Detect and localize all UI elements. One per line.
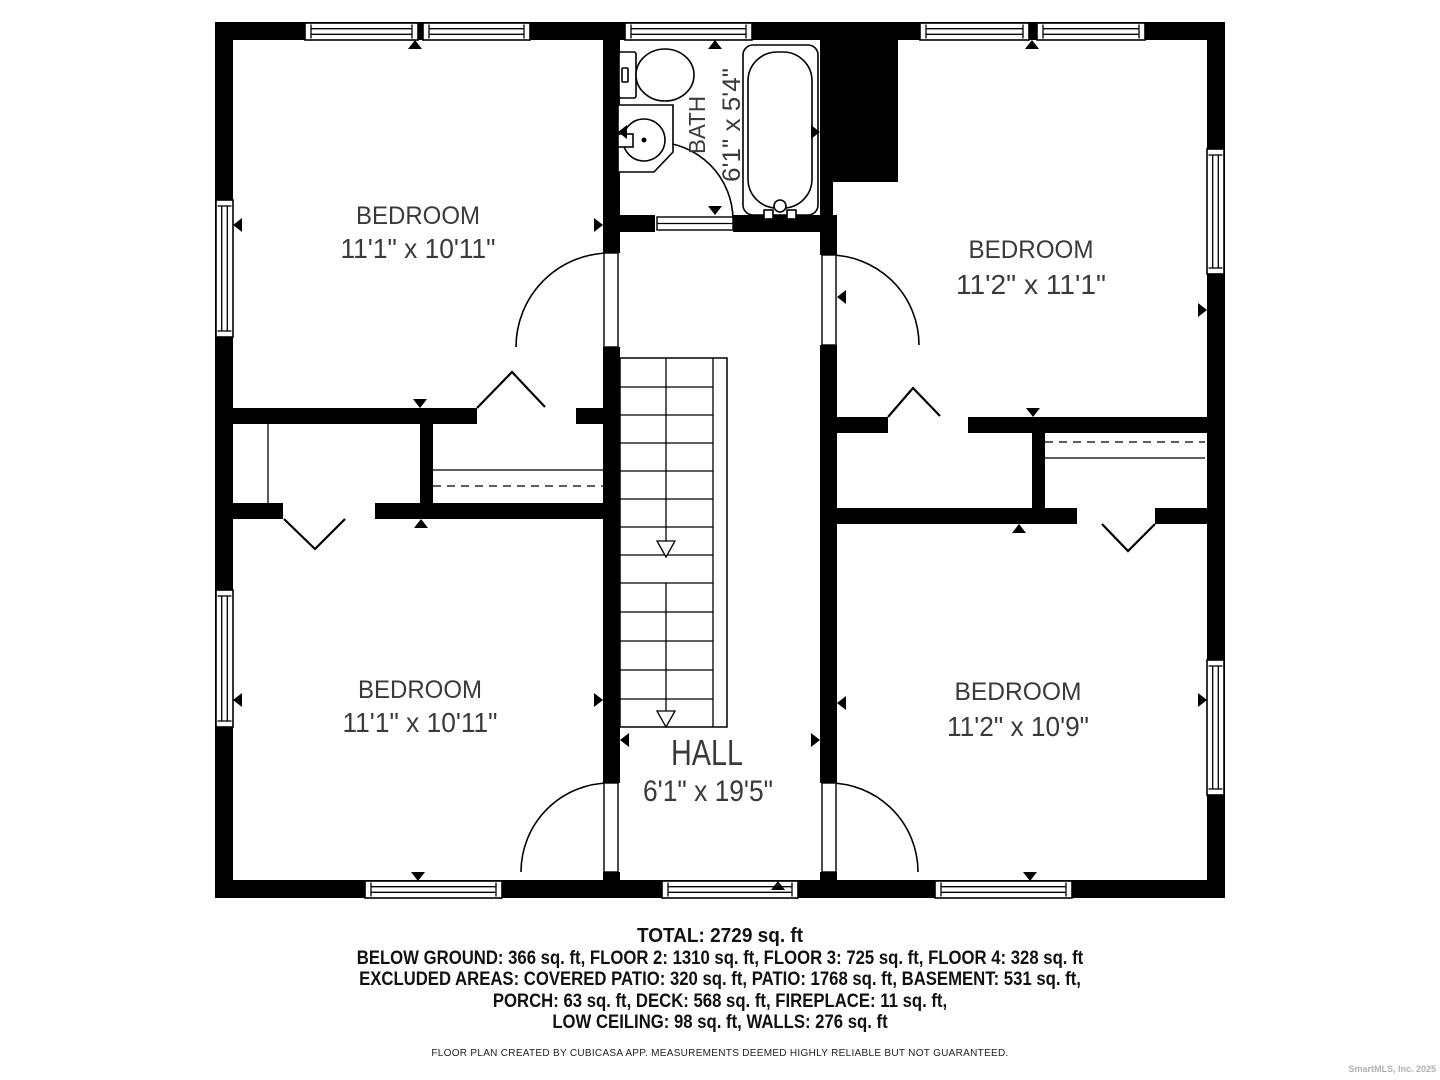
wall xyxy=(576,408,620,424)
window xyxy=(216,200,233,337)
window xyxy=(1037,23,1145,40)
room-dims-hall: 6'1" x 19'5" xyxy=(643,775,773,808)
wall xyxy=(215,503,283,519)
window-frame xyxy=(1037,23,1145,40)
bathtub-icon xyxy=(743,45,818,219)
bathtub-drain xyxy=(774,200,786,212)
wall xyxy=(1032,433,1045,508)
wall xyxy=(833,40,898,182)
window-frame xyxy=(216,200,233,337)
window xyxy=(365,881,502,898)
measure-arrow xyxy=(1023,872,1037,881)
window-frame xyxy=(305,23,418,40)
measure-arrow xyxy=(1026,408,1040,417)
window-frame xyxy=(365,881,502,898)
closet-lines-layer xyxy=(268,424,1205,503)
window-frame xyxy=(920,23,1029,40)
door-leaf xyxy=(822,255,836,345)
room-label-bath: BATH xyxy=(684,96,710,154)
door-swing-arc xyxy=(516,253,610,347)
room-label-bedroom-top-right: BEDROOM xyxy=(969,236,1094,264)
window xyxy=(1207,149,1224,274)
area-breakdown-line: PORCH: 63 sq. ft, DECK: 568 sq. ft, FIRE… xyxy=(86,991,1353,1013)
floor-plan-page: BEDROOM 11'1" x 10'11" BEDROOM 11'2" x 1… xyxy=(0,0,1440,1080)
room-dims-bath: 6'1" x 5'4" xyxy=(718,68,746,182)
staircase xyxy=(620,358,727,727)
measure-arrow xyxy=(594,693,603,707)
window xyxy=(920,23,1029,40)
window xyxy=(625,23,752,40)
wall xyxy=(733,215,837,232)
window-frame xyxy=(1207,149,1224,274)
measure-arrow xyxy=(408,40,422,49)
door-leaf xyxy=(822,783,836,872)
room-label-bedroom-bottom-right: BEDROOM xyxy=(955,678,1082,706)
room-label-bedroom-bottom-left: BEDROOM xyxy=(358,676,482,704)
door-swing-arc xyxy=(829,783,918,872)
room-dims-bedroom-top-right: 11'2" x 11'1" xyxy=(956,269,1106,300)
room-dims-bedroom-bottom-left: 11'1" x 10'11" xyxy=(343,707,498,738)
sink-drain xyxy=(642,138,647,143)
measure-arrow xyxy=(708,206,722,215)
area-breakdown-line: BELOW GROUND: 366 sq. ft, FLOOR 2: 1310 … xyxy=(86,948,1353,970)
footer-summary: TOTAL: 2729 sq. ft BELOW GROUND: 366 sq.… xyxy=(0,926,1440,1059)
window-frame xyxy=(625,23,752,40)
sink-icon xyxy=(618,105,673,172)
room-label-bedroom-top-left: BEDROOM xyxy=(356,202,480,230)
door-swing-arc xyxy=(521,783,610,872)
room-label-hall: HALL xyxy=(671,732,743,773)
bathtub-faucet xyxy=(787,210,796,219)
door-leaf xyxy=(604,783,618,872)
measure-arrow xyxy=(413,399,427,408)
wall xyxy=(603,215,655,232)
bifold-door xyxy=(284,519,345,549)
wall xyxy=(820,345,837,783)
area-breakdown-line: EXCLUDED AREAS: COVERED PATIO: 320 sq. f… xyxy=(86,969,1353,991)
wall xyxy=(1155,508,1207,524)
wall xyxy=(603,872,620,880)
total-area-text: TOTAL: 2729 sq. ft xyxy=(36,926,1404,948)
measure-arrow xyxy=(1012,524,1026,533)
measure-arrow xyxy=(837,696,846,710)
measure-arrow xyxy=(708,40,722,49)
window xyxy=(423,23,530,40)
toilet-icon xyxy=(619,49,694,101)
window-frame xyxy=(216,590,233,727)
window xyxy=(1207,660,1224,795)
measure-arrow xyxy=(811,733,820,747)
measure-arrow xyxy=(1025,40,1039,49)
window-frame xyxy=(935,881,1072,898)
floor-plan-canvas: BEDROOM 11'1" x 10'11" BEDROOM 11'2" x 1… xyxy=(0,0,1440,910)
wall xyxy=(420,424,433,503)
measure-arrow xyxy=(1198,303,1207,317)
wall xyxy=(215,408,477,424)
room-dims-bedroom-bottom-right: 11'2" x 10'9" xyxy=(947,711,1089,742)
wall xyxy=(837,417,888,433)
window xyxy=(305,23,418,40)
wall xyxy=(820,40,833,215)
window xyxy=(935,881,1072,898)
bifold-door xyxy=(1102,524,1155,551)
wall xyxy=(820,508,1077,524)
toilet-flush-button xyxy=(622,68,628,82)
measure-arrow xyxy=(233,218,242,232)
attribution-text: FLOOR PLAN CREATED BY CUBICASA APP. MEAS… xyxy=(0,1048,1440,1059)
measure-arrow xyxy=(594,218,603,232)
measure-arrow xyxy=(837,290,846,304)
measure-arrow xyxy=(414,519,428,528)
bifold-door xyxy=(477,372,545,408)
window xyxy=(216,590,233,727)
wall xyxy=(215,22,233,898)
bathtub-inner xyxy=(748,52,812,208)
window-frame xyxy=(1207,660,1224,795)
toilet-bowl xyxy=(636,49,694,101)
wall xyxy=(820,872,837,880)
bifold-door xyxy=(888,388,940,417)
wall xyxy=(968,417,1207,433)
bathtub-faucet xyxy=(764,210,773,219)
area-breakdown-line: LOW CEILING: 98 sq. ft, WALLS: 276 sq. f… xyxy=(86,1012,1353,1034)
door-leaf xyxy=(604,253,618,347)
measure-arrow xyxy=(1198,693,1207,707)
wall xyxy=(375,503,620,519)
watermark-text: SmartMLS, Inc. 2025 xyxy=(1348,1064,1436,1074)
measure-arrow xyxy=(233,693,242,707)
room-dims-bedroom-top-left: 11'1" x 10'11" xyxy=(341,233,496,264)
measure-arrow xyxy=(411,872,425,881)
window-frame xyxy=(423,23,530,40)
measure-arrow xyxy=(620,733,629,747)
